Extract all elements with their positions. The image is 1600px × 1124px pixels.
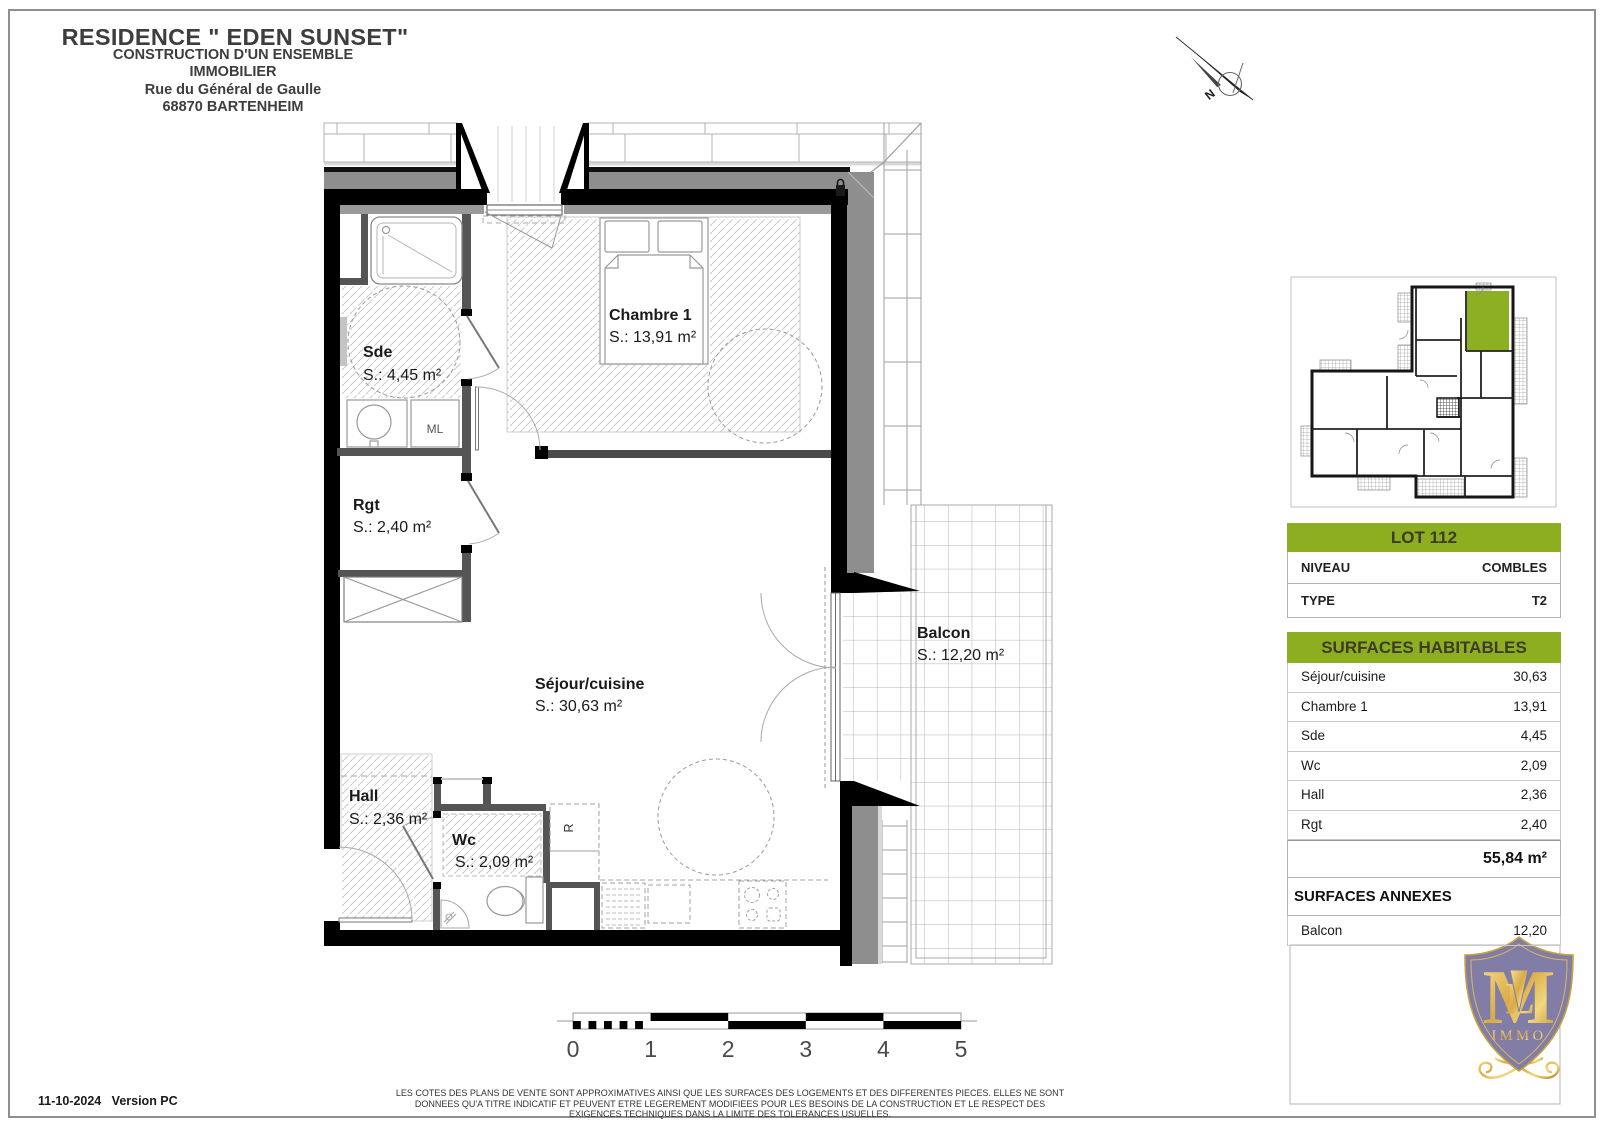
svg-text:Rgt: Rgt	[353, 497, 380, 514]
svg-text:S.: 13,91 m²: S.: 13,91 m²	[609, 329, 697, 346]
svg-text:IMMO: IMMO	[1491, 1028, 1546, 1044]
svg-text:S.: 4,45 m²: S.: 4,45 m²	[363, 367, 442, 384]
svg-text:3: 3	[799, 1036, 812, 1062]
svg-text:1: 1	[644, 1036, 657, 1062]
svg-text:N: N	[1202, 86, 1217, 102]
svg-text:R: R	[562, 823, 576, 832]
svg-text:0: 0	[567, 1036, 580, 1062]
svg-text:S.: 30,63 m²: S.: 30,63 m²	[535, 698, 623, 715]
svg-text:Séjour/cuisine: Séjour/cuisine	[535, 676, 644, 693]
svg-text:2: 2	[722, 1036, 735, 1062]
svg-text:S.: 2,36 m²: S.: 2,36 m²	[349, 811, 428, 828]
svg-text:S.: 2,40 m²: S.: 2,40 m²	[353, 519, 432, 536]
svg-text:Balcon: Balcon	[917, 625, 970, 642]
svg-text:S.: 12,20 m²: S.: 12,20 m²	[917, 647, 1005, 664]
svg-text:4: 4	[877, 1036, 890, 1062]
svg-text:S.: 2,09 m²: S.: 2,09 m²	[455, 854, 534, 871]
svg-text:ML: ML	[427, 422, 444, 436]
svg-text:Hall: Hall	[349, 788, 378, 805]
svg-text:Wc: Wc	[452, 832, 476, 849]
svg-text:5: 5	[955, 1036, 968, 1062]
svg-text:Chambre 1: Chambre 1	[609, 307, 692, 324]
svg-text:Sde: Sde	[363, 344, 392, 361]
